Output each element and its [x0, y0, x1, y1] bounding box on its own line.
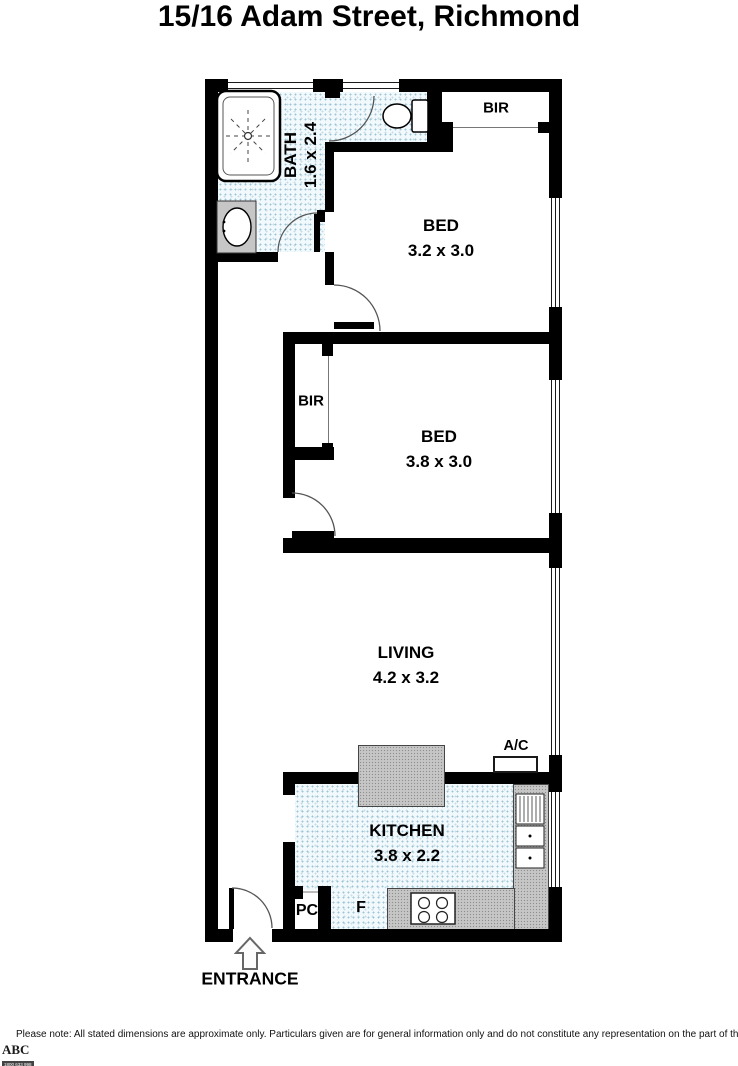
- room-dims: 1.6 x 2.4: [301, 122, 321, 188]
- entrance-label: ENTRANCE: [201, 969, 298, 990]
- wall: [331, 142, 440, 152]
- wall: [283, 447, 334, 460]
- room-label-bed2: BED 3.8 x 3.0: [406, 424, 472, 474]
- wall: [399, 79, 562, 92]
- ac-label: A/C: [504, 738, 529, 754]
- window: [228, 79, 313, 92]
- wall: [218, 252, 278, 262]
- window: [549, 792, 562, 887]
- bathroom-floor: [218, 92, 427, 142]
- pc-label: PC: [296, 902, 318, 920]
- room-label-living: LIVING 4.2 x 3.2: [373, 640, 439, 690]
- wall: [205, 79, 228, 92]
- room-dims: 3.8 x 3.0: [406, 449, 472, 474]
- wall: [205, 929, 233, 942]
- wall: [283, 332, 549, 344]
- room-dims: 3.8 x 2.2: [369, 843, 445, 868]
- room-label-bed1: BED 3.2 x 3.0: [408, 213, 474, 263]
- room-name: LIVING: [373, 640, 439, 665]
- wall: [549, 513, 562, 568]
- room-dims: 3.2 x 3.0: [408, 238, 474, 263]
- island-bench: [358, 745, 445, 807]
- wall: [549, 307, 562, 380]
- floor-plan-page: 15/16 Adam Street, Richmond: [0, 0, 738, 1066]
- wall: [205, 79, 218, 942]
- agency-phone: 1800 633 998: [2, 1061, 34, 1066]
- room-name: KITCHEN: [369, 818, 445, 843]
- door-leaf: [334, 322, 374, 329]
- window: [549, 568, 562, 755]
- door-leaf: [229, 888, 234, 929]
- kitchen-counter-right: [513, 784, 549, 930]
- wall: [325, 92, 340, 98]
- entrance-arrow-icon: [236, 938, 264, 969]
- room-name: BATH: [281, 122, 301, 188]
- wall: [283, 332, 295, 498]
- wall: [549, 755, 562, 792]
- door-leaf: [292, 531, 334, 538]
- fridge-label: F: [356, 899, 366, 917]
- wall: [272, 929, 562, 942]
- room-dims: 4.2 x 3.2: [373, 665, 439, 690]
- room-name: BED: [406, 424, 472, 449]
- bir-label-bed1: BIR: [483, 100, 509, 117]
- wall: [442, 122, 453, 152]
- room-name: BED: [408, 213, 474, 238]
- bir-label-bed2: BIR: [298, 393, 324, 410]
- window: [549, 198, 562, 307]
- wall: [283, 772, 295, 795]
- wall: [538, 122, 549, 133]
- ac-unit: [493, 756, 538, 773]
- kitchen-counter-bottom: [387, 888, 515, 930]
- plan-title: 15/16 Adam Street, Richmond: [0, 0, 738, 34]
- wall: [322, 344, 333, 356]
- window: [549, 380, 562, 513]
- agency-logo: ABC1800 633 998 www.abcphotosigns.com.au: [2, 1041, 44, 1066]
- room-label-bath: BATH 1.6 x 2.4: [281, 122, 321, 188]
- disclaimer-text: Please note: All stated dimensions are a…: [16, 1029, 736, 1040]
- room-label-kitchen: KITCHEN 3.8 x 2.2: [369, 818, 445, 868]
- wall: [313, 79, 343, 92]
- wall: [325, 142, 334, 212]
- agency-logo-text: ABC: [2, 1044, 29, 1056]
- wall: [318, 886, 331, 930]
- wall: [549, 79, 562, 198]
- wall: [325, 252, 334, 285]
- door-leaf: [314, 214, 320, 252]
- wall: [283, 538, 549, 553]
- window: [343, 79, 399, 92]
- wall: [293, 886, 303, 899]
